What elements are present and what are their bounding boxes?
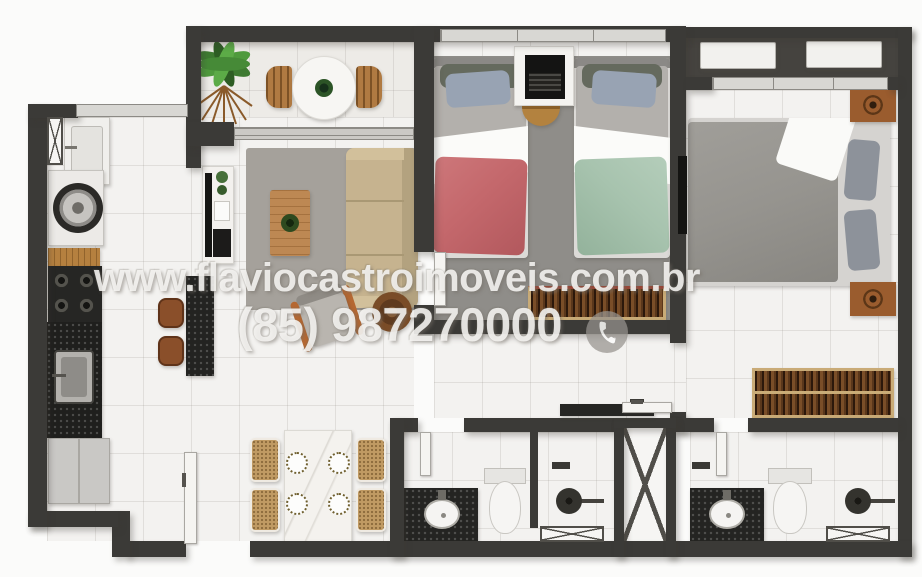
wall-balcony-left bbox=[186, 26, 201, 168]
bathroom2-shower-arm bbox=[869, 499, 895, 503]
bathroom1-faucet bbox=[438, 490, 446, 500]
service-window bbox=[76, 104, 188, 117]
bathroom2-toilet bbox=[768, 468, 812, 538]
rack-plant bbox=[217, 185, 227, 195]
plate bbox=[286, 493, 308, 515]
bathroom1-window-hatch bbox=[540, 526, 604, 542]
kitchen-wood-counter bbox=[48, 248, 100, 266]
bathroom2-shower-valve bbox=[692, 462, 710, 469]
wall-living-twin bbox=[414, 26, 434, 252]
wall-shaft-left bbox=[614, 418, 624, 557]
bed-duvet-green bbox=[574, 156, 669, 255]
plate bbox=[328, 493, 350, 515]
toilet-bowl bbox=[773, 481, 806, 534]
wall-master-bottom-left bbox=[676, 418, 714, 432]
bathroom2-sink bbox=[709, 499, 745, 529]
desk bbox=[514, 46, 574, 106]
service-shaft-hatch bbox=[47, 117, 63, 165]
laundry-basin bbox=[71, 126, 103, 176]
master-bedroom-door bbox=[622, 402, 672, 413]
ac-condenser bbox=[806, 41, 882, 68]
bar-stool bbox=[158, 336, 184, 366]
tv-rack bbox=[202, 166, 234, 264]
balcony-sliding-door bbox=[234, 127, 414, 140]
bathroom2-window-hatch bbox=[826, 526, 890, 542]
dining-chair bbox=[356, 438, 386, 482]
nightstand bbox=[850, 282, 896, 316]
dining-table bbox=[284, 430, 352, 542]
wall-dining-bath bbox=[390, 418, 404, 557]
entrance-door-handle bbox=[182, 473, 186, 487]
wall-shaft-top bbox=[614, 418, 676, 428]
single-bed-green bbox=[574, 58, 670, 258]
rack-plant bbox=[216, 171, 228, 183]
entrance-door bbox=[184, 452, 197, 544]
bed-pillow-blue bbox=[445, 70, 511, 108]
wall-shaft-right bbox=[666, 418, 676, 557]
rack-box-white bbox=[214, 201, 230, 221]
wall-master-window-right bbox=[888, 77, 898, 90]
sink-basin bbox=[61, 357, 87, 397]
refrigerator bbox=[48, 438, 110, 504]
floor-plan-render: www.flaviocastroimoveis.com.br (85) 9872… bbox=[0, 0, 922, 577]
tv-panel bbox=[205, 173, 212, 257]
washing-machine bbox=[48, 170, 104, 246]
bathroom1-shower-head bbox=[556, 488, 582, 514]
wardrobe-divider bbox=[755, 391, 891, 394]
burner bbox=[79, 298, 94, 313]
coffee-table-plant bbox=[281, 214, 299, 232]
bathroom2-shower-head bbox=[845, 488, 871, 514]
elevator-shaft-hatch bbox=[624, 428, 666, 541]
bathroom1-shower-arm bbox=[580, 499, 604, 503]
dining-chair bbox=[250, 488, 280, 532]
plate bbox=[286, 452, 308, 474]
wall-top-technical bbox=[684, 27, 912, 38]
coffee-table bbox=[270, 190, 310, 256]
wall-master-window-left bbox=[686, 77, 712, 90]
dining-chair bbox=[356, 488, 386, 532]
wall-shower-partition bbox=[530, 432, 538, 528]
bathroom2-door bbox=[716, 432, 727, 476]
bathroom1-toilet bbox=[484, 468, 526, 538]
toilet-bowl bbox=[489, 481, 521, 534]
burner bbox=[54, 298, 69, 313]
nightstand bbox=[850, 88, 896, 122]
sink-drain bbox=[726, 513, 731, 518]
watermark-phone: (85) 987270000 bbox=[237, 297, 562, 352]
wall-bottom-entry bbox=[126, 541, 186, 557]
plate bbox=[328, 452, 350, 474]
wall-topleft-corner bbox=[28, 104, 78, 118]
phone-icon bbox=[583, 308, 631, 356]
laptop-keyboard bbox=[529, 73, 561, 91]
wall-left bbox=[28, 104, 47, 527]
bathroom2-vanity bbox=[690, 488, 764, 542]
burner bbox=[79, 273, 94, 288]
balcony-chair-right bbox=[356, 66, 382, 108]
bathroom1-shower-valve bbox=[552, 462, 570, 469]
wall-hall-bath-b bbox=[464, 418, 614, 432]
balcony-chair-left bbox=[266, 66, 292, 108]
palm-trunk-fronds bbox=[196, 86, 252, 126]
bed-duvet-red bbox=[432, 156, 527, 255]
sofa-cushion-line bbox=[346, 200, 404, 202]
watermark-website: www.flaviocastroimoveis.com.br bbox=[94, 256, 700, 301]
sink-faucet bbox=[52, 374, 66, 377]
burner bbox=[54, 273, 69, 288]
sink-drain bbox=[441, 513, 446, 518]
sofa-arm-top bbox=[346, 148, 404, 160]
rack-box-black bbox=[213, 229, 231, 257]
master-door-handle bbox=[631, 400, 643, 404]
washer-door bbox=[53, 183, 103, 233]
double-bed bbox=[688, 118, 890, 286]
wall-right bbox=[898, 27, 912, 557]
bed-pillow bbox=[843, 209, 880, 272]
bar-stool bbox=[158, 298, 184, 328]
master-bedroom-window bbox=[712, 77, 888, 90]
bathroom1-sink bbox=[424, 499, 460, 529]
bed-pillow-blue bbox=[591, 70, 657, 108]
twin-bedroom-window bbox=[440, 29, 666, 42]
bathroom2-faucet bbox=[723, 490, 731, 500]
master-tv-panel bbox=[678, 156, 687, 234]
wall-bottom-main bbox=[250, 541, 912, 557]
kitchen-sink-counter bbox=[46, 322, 102, 438]
kitchen-sink bbox=[54, 350, 94, 404]
palm-leaves bbox=[195, 39, 253, 89]
master-wardrobe bbox=[752, 368, 894, 418]
table-plant bbox=[315, 79, 333, 97]
ac-condenser bbox=[700, 42, 776, 69]
wall-master-bottom-right bbox=[748, 418, 898, 432]
laptop bbox=[525, 55, 565, 99]
laundry-faucet bbox=[65, 146, 77, 149]
bathroom1-vanity bbox=[404, 488, 478, 542]
bathroom1-door bbox=[420, 432, 431, 476]
wall-balcony-door-jamb bbox=[186, 122, 234, 146]
bed-pillow bbox=[843, 139, 880, 202]
dining-chair bbox=[250, 438, 280, 482]
